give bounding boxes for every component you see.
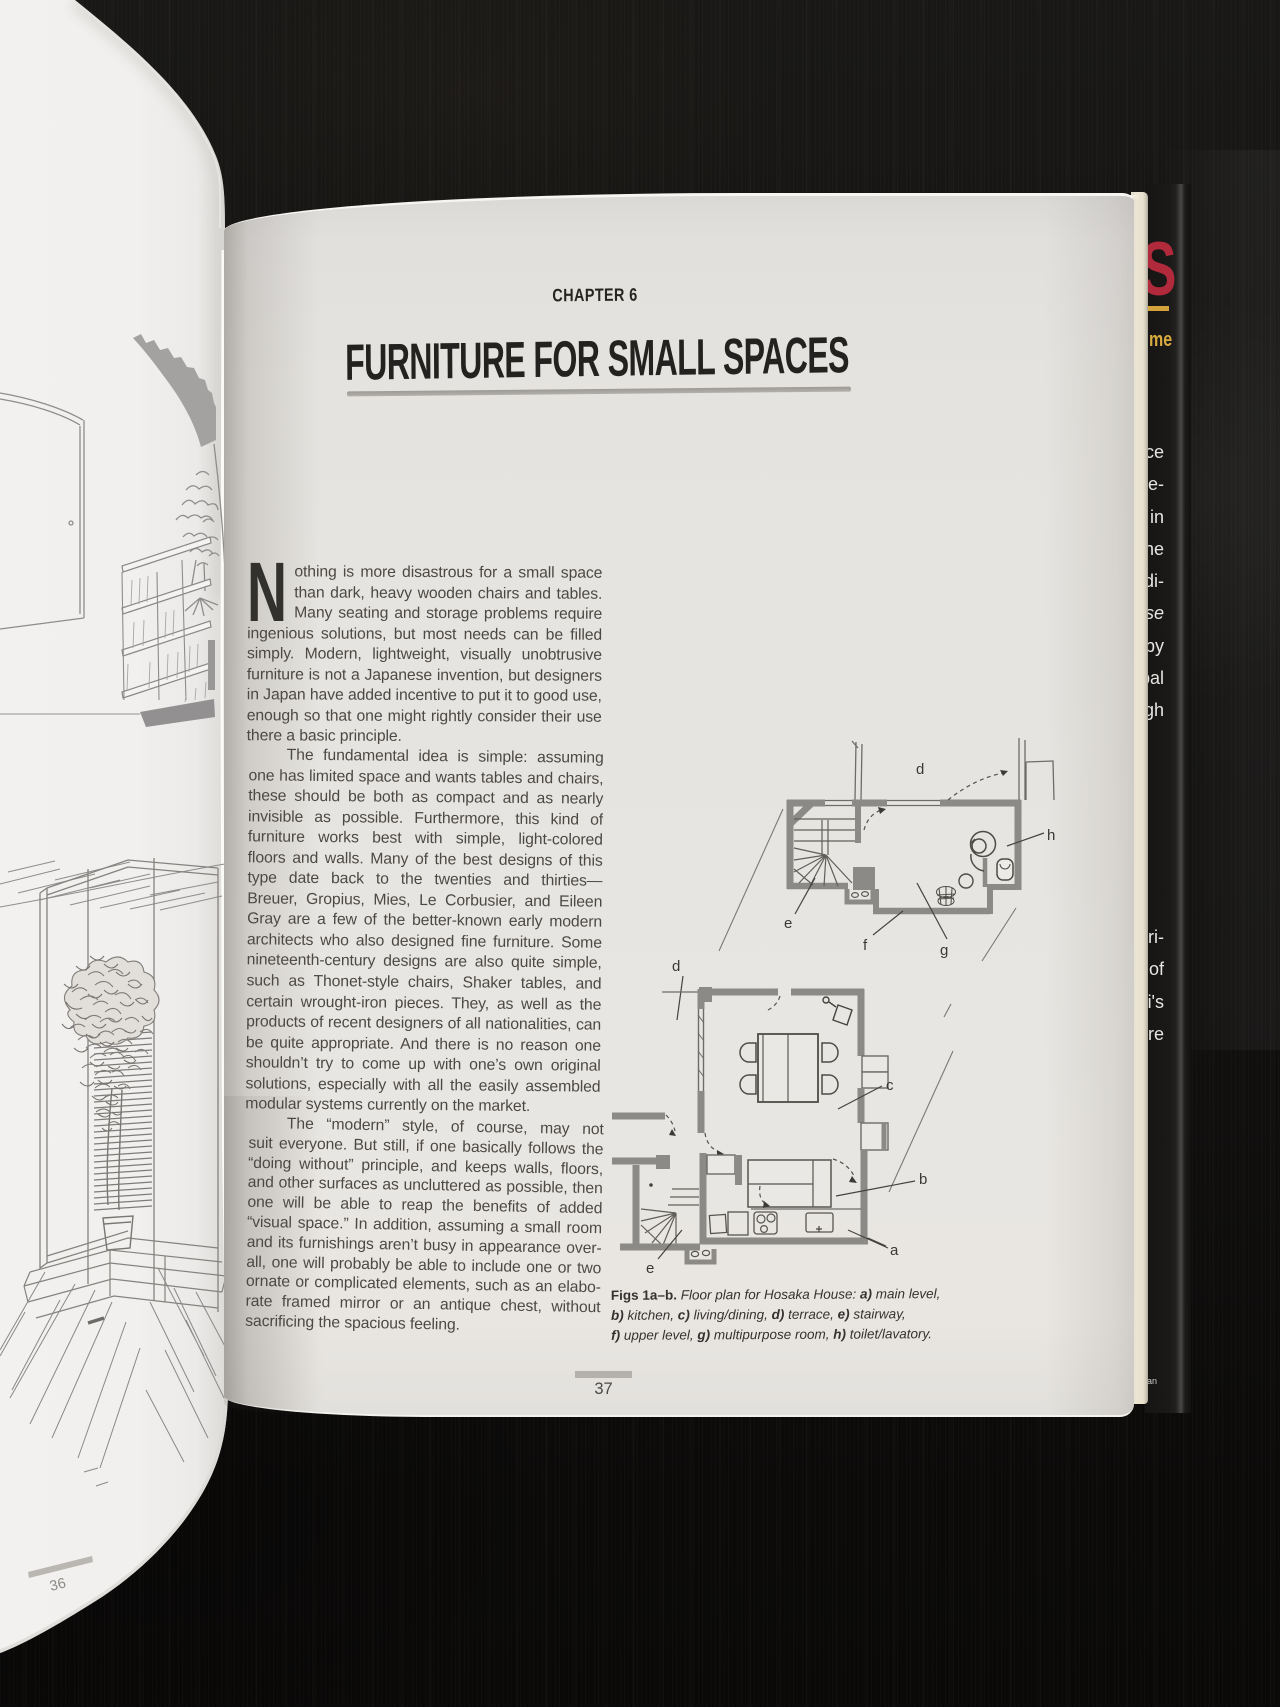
svg-text:b: b (919, 1171, 927, 1188)
svg-text:e: e (646, 1260, 654, 1277)
svg-text:g: g (940, 942, 948, 959)
svg-text:e: e (784, 915, 792, 932)
svg-text:h: h (1047, 827, 1055, 844)
svg-text:d: d (916, 761, 924, 778)
svg-text:d: d (672, 958, 680, 975)
svg-text:c: c (886, 1077, 894, 1094)
svg-text:a: a (890, 1242, 899, 1259)
svg-text:f: f (863, 937, 868, 954)
